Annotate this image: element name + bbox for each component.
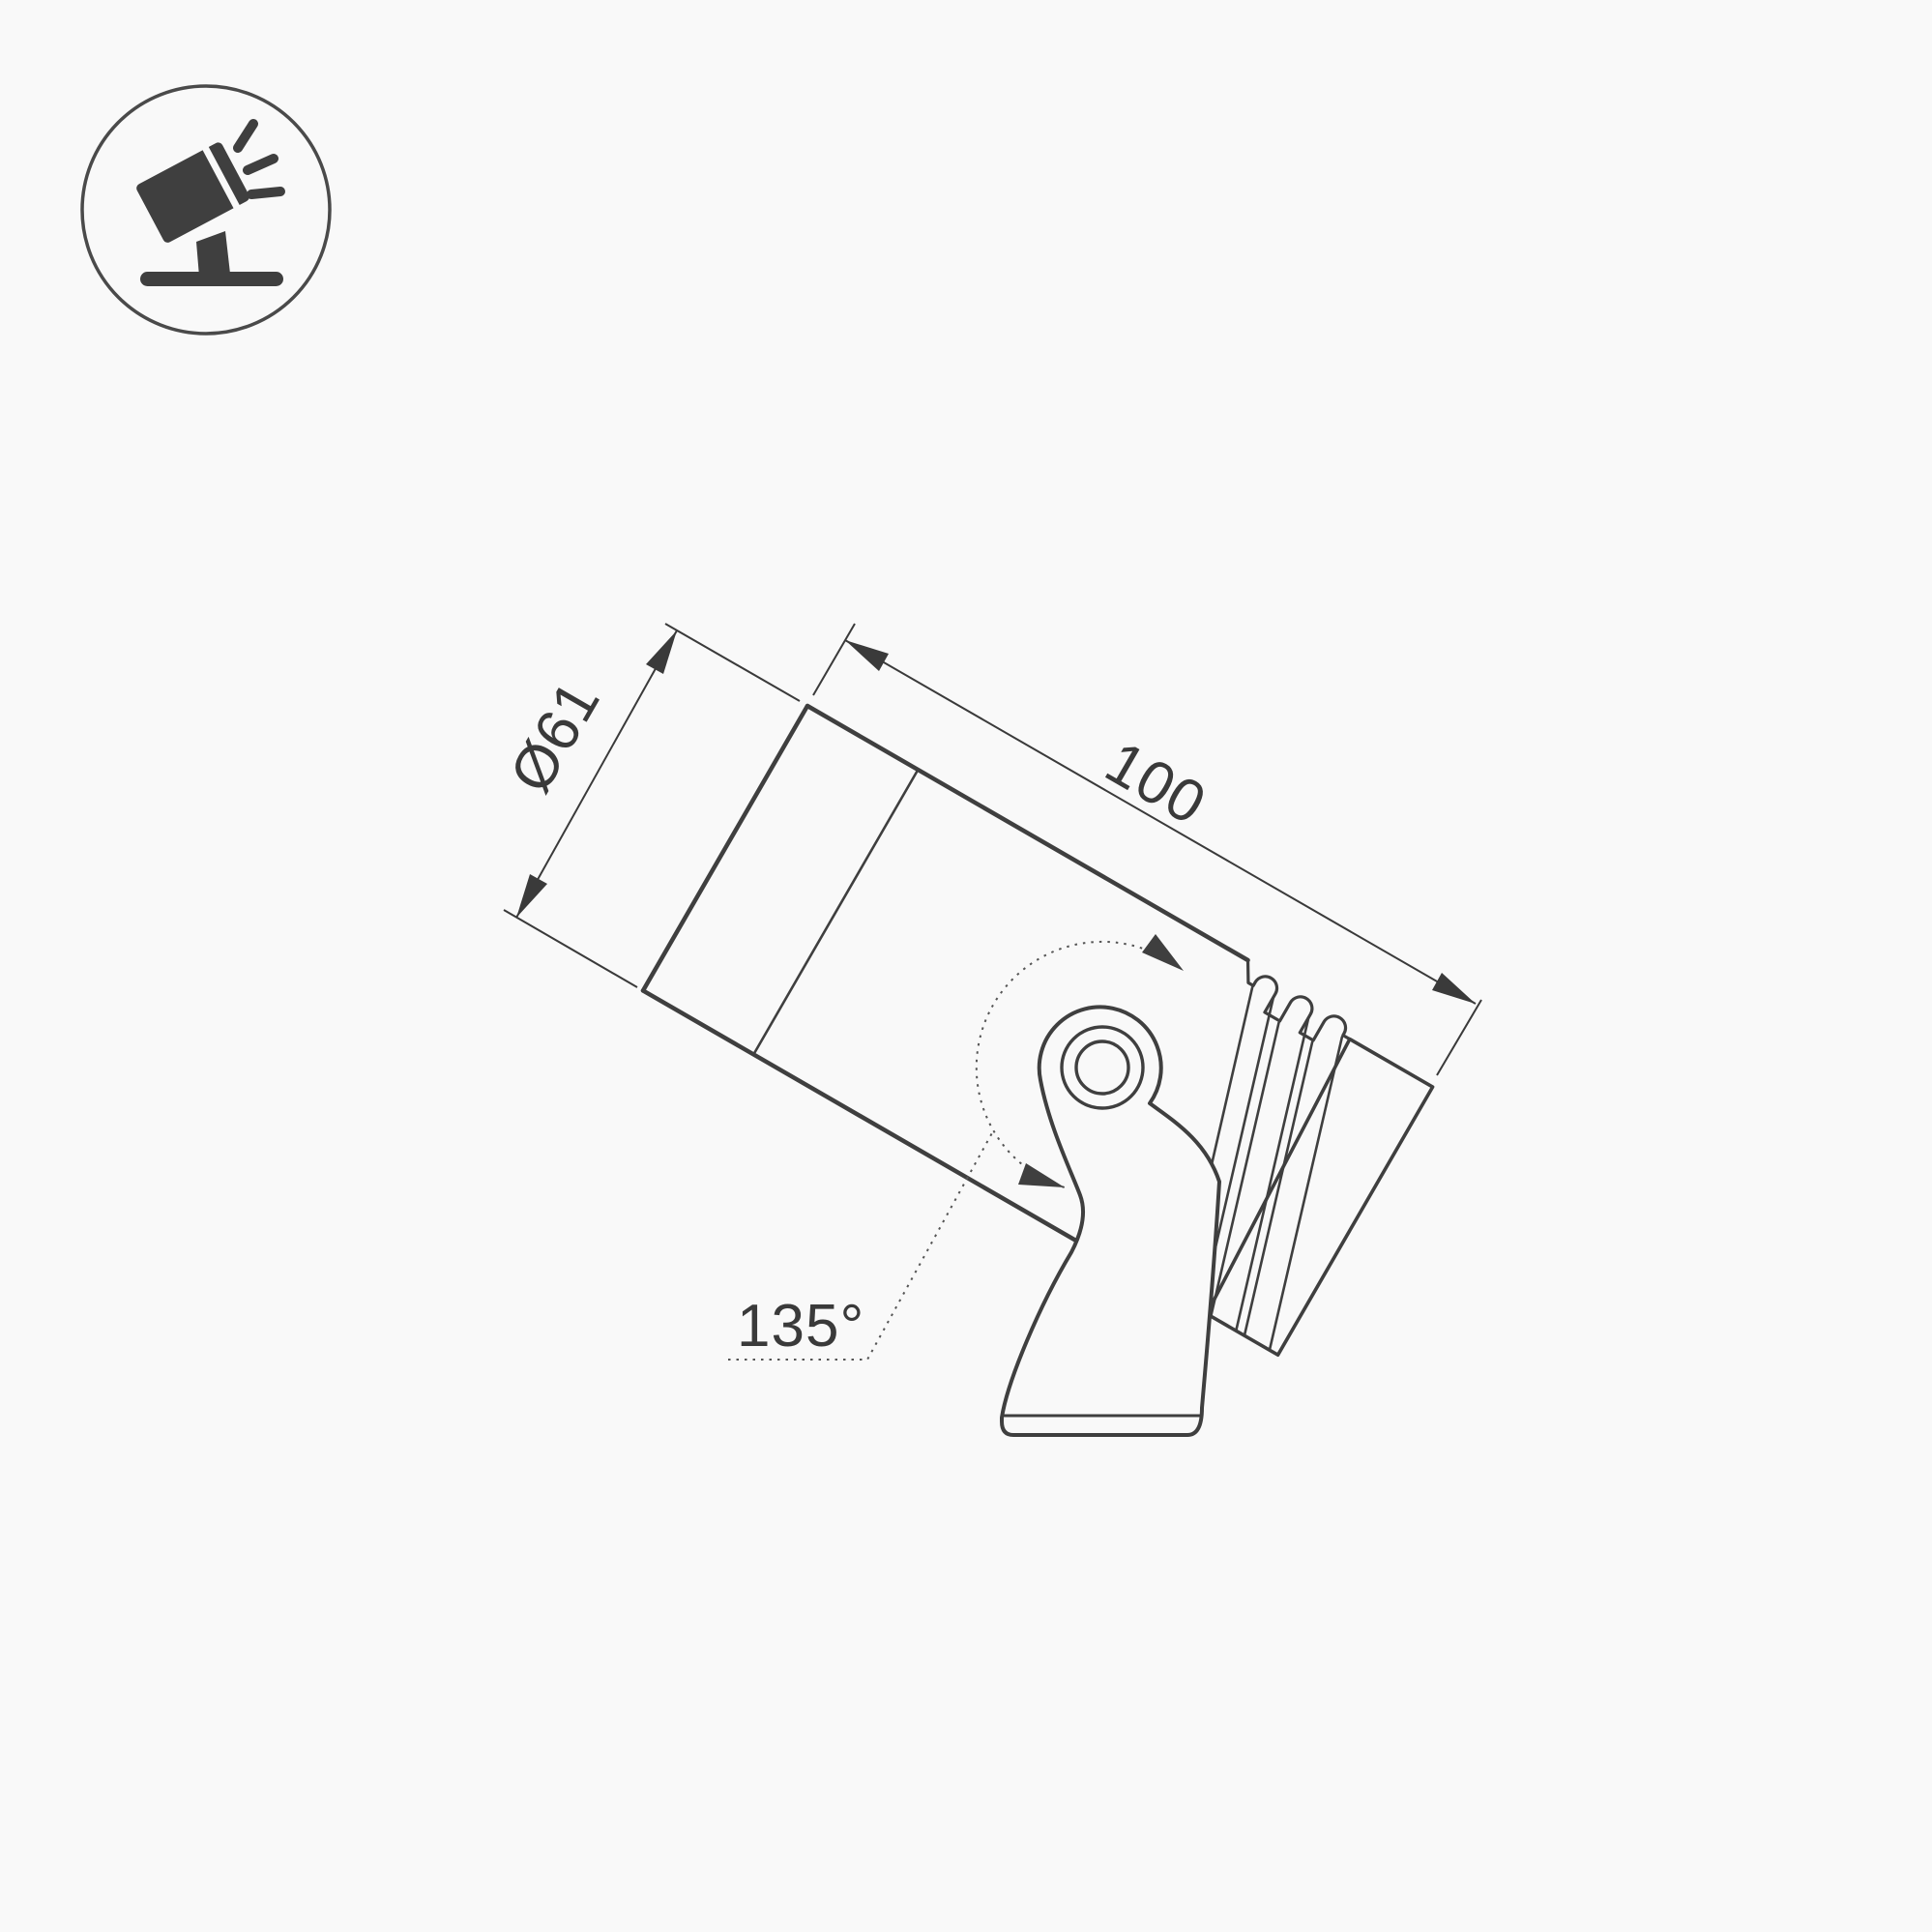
ext-line-bottom <box>504 910 637 987</box>
icon-ground-bar <box>140 272 283 286</box>
dimension-diameter <box>504 624 800 987</box>
arc-arrowhead-lower <box>1018 1163 1065 1187</box>
ext-line-top <box>665 624 800 701</box>
mounting-bracket <box>1002 1007 1219 1435</box>
icon-lamp-head <box>134 141 250 245</box>
icon-lamp-stem <box>196 231 230 277</box>
arrowhead-up <box>646 630 677 674</box>
bezel-ring-line <box>754 772 917 1053</box>
diameter-label: Ø61 <box>497 669 613 804</box>
technical-drawing-page: Ø61 100 135° <box>0 0 1932 1932</box>
ext-line-rear <box>1437 1000 1481 1075</box>
length-label: 100 <box>1095 729 1217 838</box>
swivel-angle-label: 135° <box>737 1293 864 1360</box>
arc-arrowhead-upper <box>1142 934 1184 971</box>
icon-lamp-glyph <box>132 124 283 286</box>
arrowhead-right <box>1432 973 1476 1004</box>
body-bottom-edge <box>643 990 1096 1251</box>
spotlight-body <box>643 706 1442 1357</box>
icon-light-rays <box>238 124 280 194</box>
tilted-spotlight-icon <box>82 86 330 334</box>
arrowhead-left <box>845 640 889 671</box>
arrowhead-down <box>516 874 547 918</box>
drawing-svg: Ø61 100 135° <box>0 0 1932 1932</box>
bracket-outline <box>1002 1007 1219 1435</box>
ext-line-front <box>813 624 855 695</box>
dimension-length <box>813 624 1481 1075</box>
front-face-line <box>643 706 807 990</box>
